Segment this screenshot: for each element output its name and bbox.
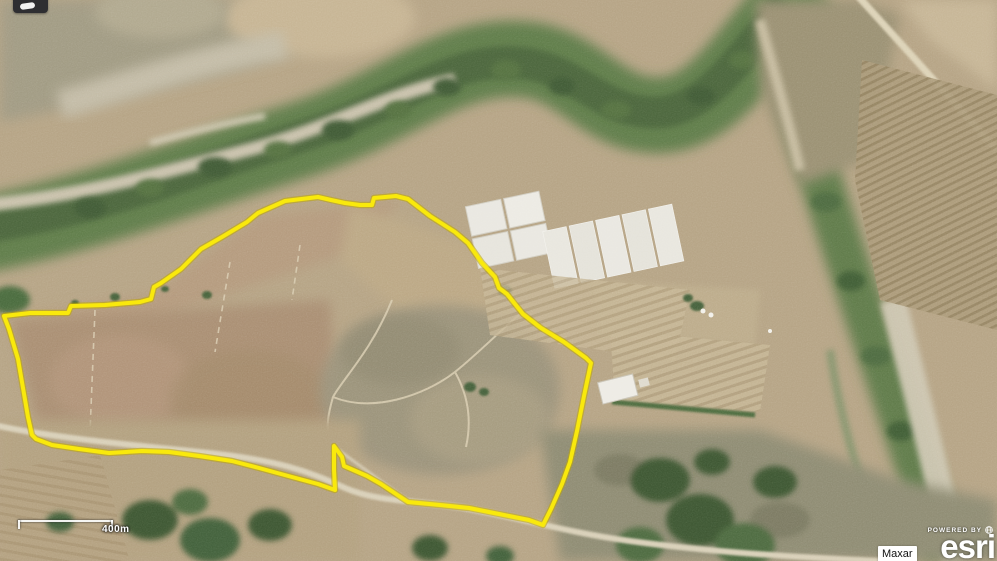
scale-bar-label: 400m bbox=[102, 524, 130, 535]
tool-glyph-partial-icon bbox=[20, 2, 36, 10]
powered-by-esri[interactable]: POWERED BY esri bbox=[921, 526, 995, 561]
scale-bar: 400m bbox=[18, 518, 113, 538]
scale-bar-tick-left bbox=[18, 520, 20, 529]
parcel-boundary-underglow bbox=[4, 196, 591, 525]
esri-logo: esri bbox=[921, 532, 995, 561]
scale-bar-line bbox=[18, 520, 113, 522]
map-tool-button-partial[interactable] bbox=[13, 0, 48, 13]
parcel-overlay-layer bbox=[0, 0, 997, 561]
attribution-maxar: Maxar bbox=[878, 546, 917, 561]
map-canvas[interactable]: 400m Maxar POWERED BY esri bbox=[0, 0, 997, 561]
